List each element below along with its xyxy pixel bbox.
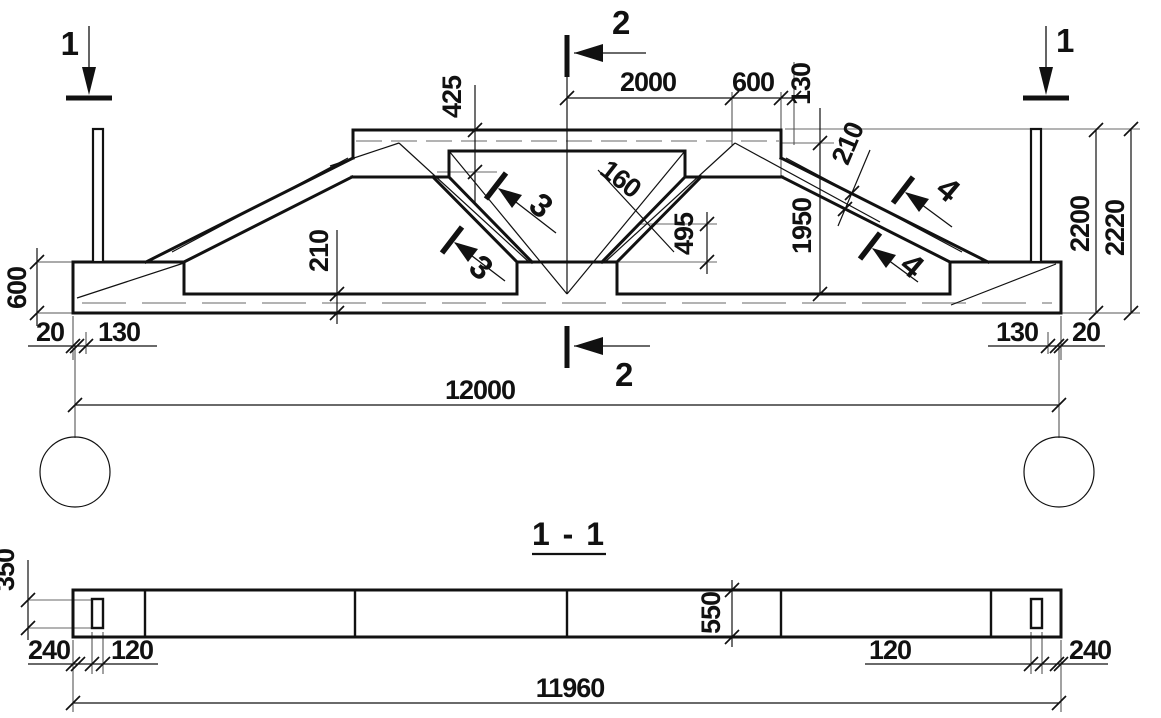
section-marker-4-lower: 4	[860, 233, 932, 286]
lifting-hole-right	[1031, 599, 1042, 628]
section-title-group: 1 - 1	[532, 516, 606, 554]
dim-600-left: 600	[2, 267, 32, 309]
marker-label-1-left: 1	[61, 25, 79, 62]
truss-drawing-sheet: 1 1 2 2 3 3 4 4	[0, 0, 1161, 718]
lifting-hole-left	[92, 599, 103, 628]
dimension-lines	[28, 85, 1131, 703]
post-left	[93, 129, 103, 262]
dim-12000: 12000	[445, 375, 515, 405]
dimension-ticks	[21, 91, 1138, 710]
dim-120-right: 120	[869, 635, 911, 665]
dim-425: 425	[437, 75, 467, 118]
dim-130-right: 130	[996, 317, 1038, 347]
section-marker-3-upper: 3	[486, 173, 560, 233]
axis-bubble-left	[40, 437, 110, 507]
arrow-upleft-icon	[498, 188, 522, 208]
dim-600-top: 600	[732, 67, 774, 97]
dim-210-slope: 210	[826, 118, 870, 168]
arrow-left-icon	[574, 337, 603, 355]
drawing-canvas: 1 1 2 2 3 3 4 4	[0, 0, 1161, 718]
marker-label-2-top: 2	[612, 4, 630, 41]
marker-label-1-right: 1	[1056, 22, 1074, 59]
section-1-1-joints	[92, 590, 1042, 637]
section-marker-3-lower: 3	[442, 227, 505, 287]
dim-550: 550	[696, 592, 726, 634]
dim-130-top: 130	[786, 63, 816, 105]
axis-bubbles	[40, 437, 1094, 507]
section-marker-1-left: 1	[61, 25, 112, 98]
marker-label-4-upper: 4	[929, 169, 967, 210]
dim-210-chord: 210	[304, 230, 334, 272]
post-right	[1031, 129, 1041, 262]
extension-lines	[37, 62, 1140, 712]
dim-1950: 1950	[787, 198, 817, 254]
axis-bubble-right	[1024, 437, 1094, 507]
marker-label-2-bottom: 2	[615, 356, 633, 393]
dim-2220: 2220	[1100, 200, 1130, 256]
dim-350: 350	[0, 549, 20, 591]
dim-495: 495	[669, 212, 699, 255]
arrow-left-icon	[574, 44, 603, 62]
arrow-upleft-icon	[454, 242, 478, 262]
dim-240-right: 240	[1069, 635, 1111, 665]
arrow-upleft-icon	[872, 248, 896, 268]
arrow-upleft-icon	[905, 192, 929, 212]
dim-2000: 2000	[620, 67, 676, 97]
arrow-down-icon	[1039, 67, 1053, 95]
section-dimension-labels: 350 550 240 120 120 240 11960	[0, 549, 1111, 703]
dim-11960: 11960	[536, 673, 605, 703]
section-title: 1 - 1	[532, 516, 606, 552]
dim-160: 160	[595, 154, 647, 204]
dim-20-right: 20	[1072, 317, 1100, 347]
marker-label-3-upper: 3	[522, 185, 560, 225]
dim-130-left: 130	[98, 317, 140, 347]
dim-20-left: 20	[36, 317, 64, 347]
dim-240-left: 240	[28, 635, 70, 665]
dim-2200: 2200	[1065, 196, 1095, 252]
section-marker-1-right: 1	[1023, 22, 1074, 98]
arrow-down-icon	[82, 67, 96, 95]
dim-120-left: 120	[111, 635, 153, 665]
section-marker-2-bottom: 2	[567, 326, 650, 393]
